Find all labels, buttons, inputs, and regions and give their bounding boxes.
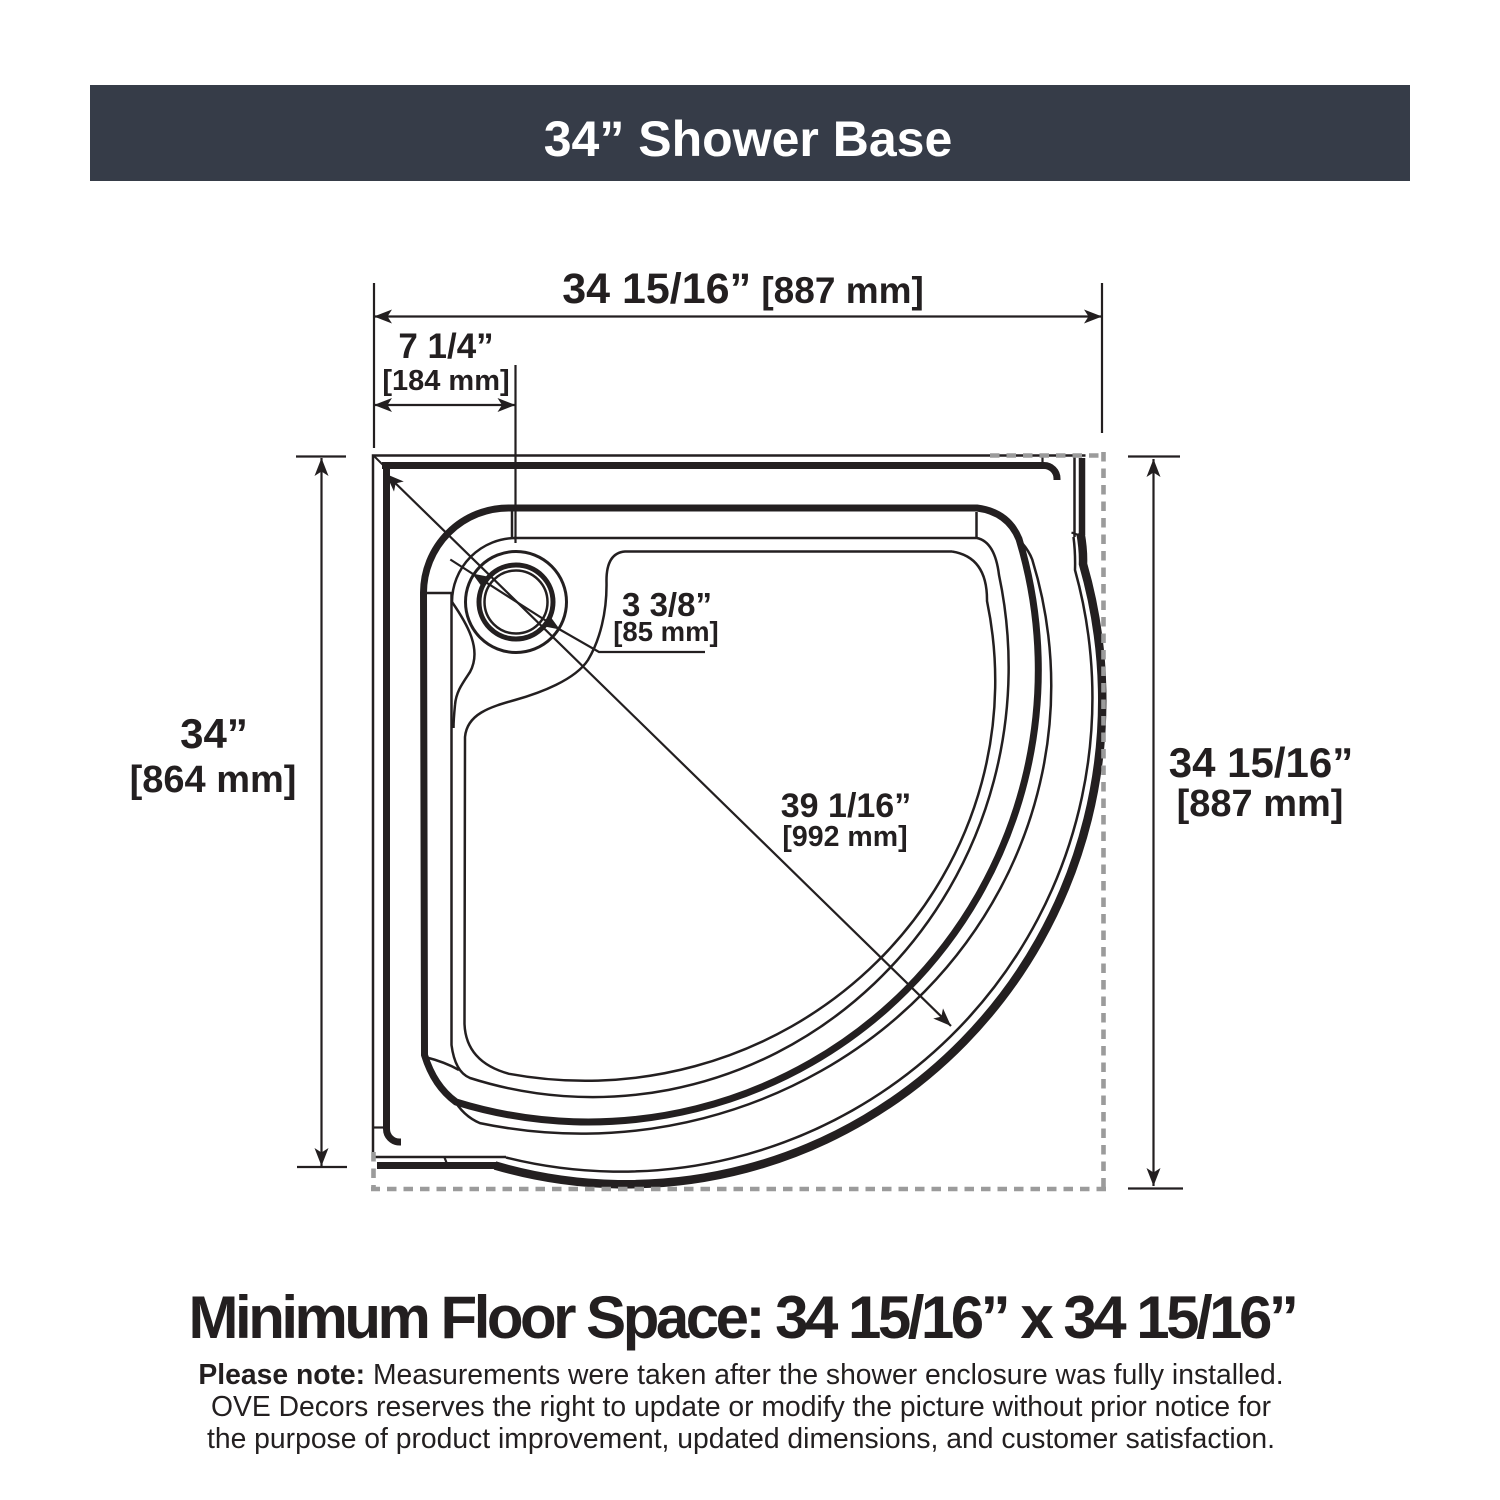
svg-text:34” Shower Base: 34” Shower Base xyxy=(544,111,953,167)
svg-text:34 15/16”: 34 15/16” xyxy=(1169,739,1354,786)
svg-text:34 15/16” [887 mm]: 34 15/16” [887 mm] xyxy=(562,265,924,313)
svg-text:[85 mm]: [85 mm] xyxy=(613,616,718,647)
svg-text:[887 mm]: [887 mm] xyxy=(1177,783,1344,825)
svg-text:OVE Decors reserves the right: OVE Decors reserves the right to update … xyxy=(211,1390,1271,1422)
svg-text:7 1/4”: 7 1/4” xyxy=(398,327,493,366)
svg-text:39 1/16”: 39 1/16” xyxy=(781,787,911,825)
svg-text:Minimum Floor Space: 34 15/16”: Minimum Floor Space: 34 15/16” x 34 15/1… xyxy=(189,1284,1296,1351)
svg-text:34”: 34” xyxy=(180,710,248,757)
svg-text:[184 mm]: [184 mm] xyxy=(382,365,509,397)
svg-text:[992 mm]: [992 mm] xyxy=(782,821,907,853)
svg-text:the purpose of product improve: the purpose of product improvement, upda… xyxy=(207,1422,1275,1454)
svg-text:[864 mm]: [864 mm] xyxy=(130,759,297,801)
svg-text:Please note: Measurements were: Please note: Measurements were taken aft… xyxy=(198,1358,1283,1390)
